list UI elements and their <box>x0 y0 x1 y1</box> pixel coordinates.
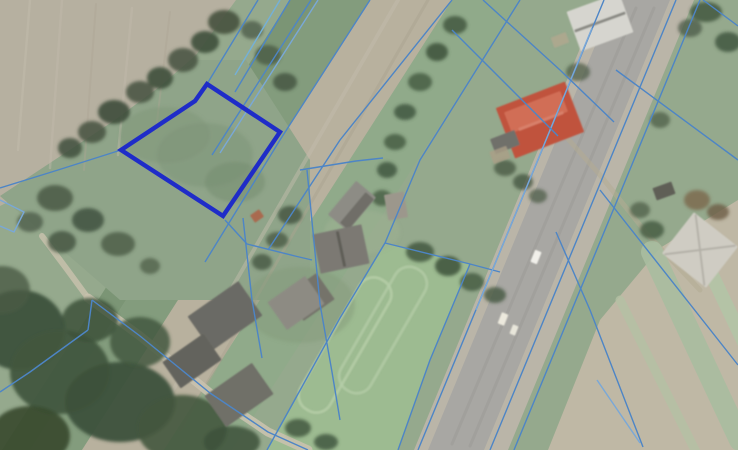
tree-canopy <box>278 206 302 224</box>
tree-canopy <box>58 138 82 158</box>
tree-canopy <box>529 189 547 203</box>
tree-canopy <box>266 232 288 248</box>
tree-canopy <box>285 419 311 437</box>
tree-canopy <box>48 231 76 253</box>
tree-canopy <box>17 212 43 232</box>
tree-canopy <box>513 174 533 190</box>
tree-canopy <box>630 202 650 218</box>
tree-canopy <box>408 73 432 91</box>
tree-canopy <box>678 19 702 37</box>
tree-canopy <box>460 273 484 291</box>
tree-canopy <box>126 81 154 103</box>
tree-canopy <box>78 121 106 143</box>
tree-canopy <box>640 221 664 239</box>
tree-canopy <box>98 100 130 124</box>
tree-canopy <box>168 48 198 72</box>
tree-canopy <box>72 208 104 232</box>
tree-canopy <box>255 45 281 65</box>
aerial-map-canvas[interactable] <box>0 0 738 450</box>
tree-canopy <box>484 287 506 303</box>
tree-canopy <box>101 232 135 256</box>
tree-canopy <box>273 73 297 91</box>
tree-canopy <box>110 317 170 367</box>
tree-canopy <box>384 134 406 150</box>
tree-canopy <box>394 104 416 120</box>
map-viewport[interactable] <box>0 0 738 450</box>
tree-canopy <box>377 162 397 178</box>
tree-canopy <box>37 185 73 211</box>
tree-canopy <box>140 258 160 274</box>
tree-canopy <box>191 31 219 53</box>
tree-canopy <box>707 204 729 220</box>
tree-canopy <box>252 254 272 270</box>
tree-canopy <box>314 434 338 450</box>
tree-canopy <box>208 10 240 34</box>
tree-canopy <box>443 16 467 34</box>
tree-canopy <box>426 43 448 61</box>
tree-canopy <box>684 190 710 210</box>
